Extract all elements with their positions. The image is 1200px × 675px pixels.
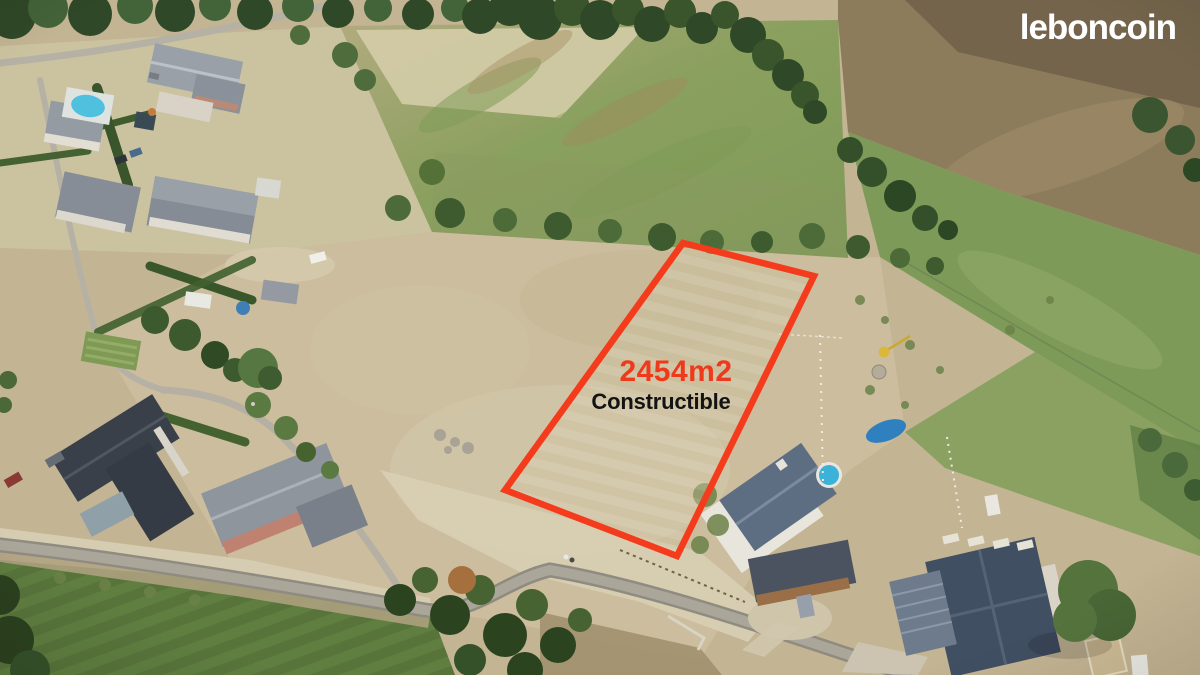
- aerial-photo: 2454m2 Constructible: [0, 0, 1200, 675]
- listing-photo: 2454m2 Constructible leboncoin: [0, 0, 1200, 675]
- parcel-status-label: Constructible: [591, 389, 730, 414]
- parcel-area-label: 2454m2: [619, 355, 732, 388]
- vignette: [0, 0, 1200, 675]
- leboncoin-logo: leboncoin: [1020, 10, 1176, 45]
